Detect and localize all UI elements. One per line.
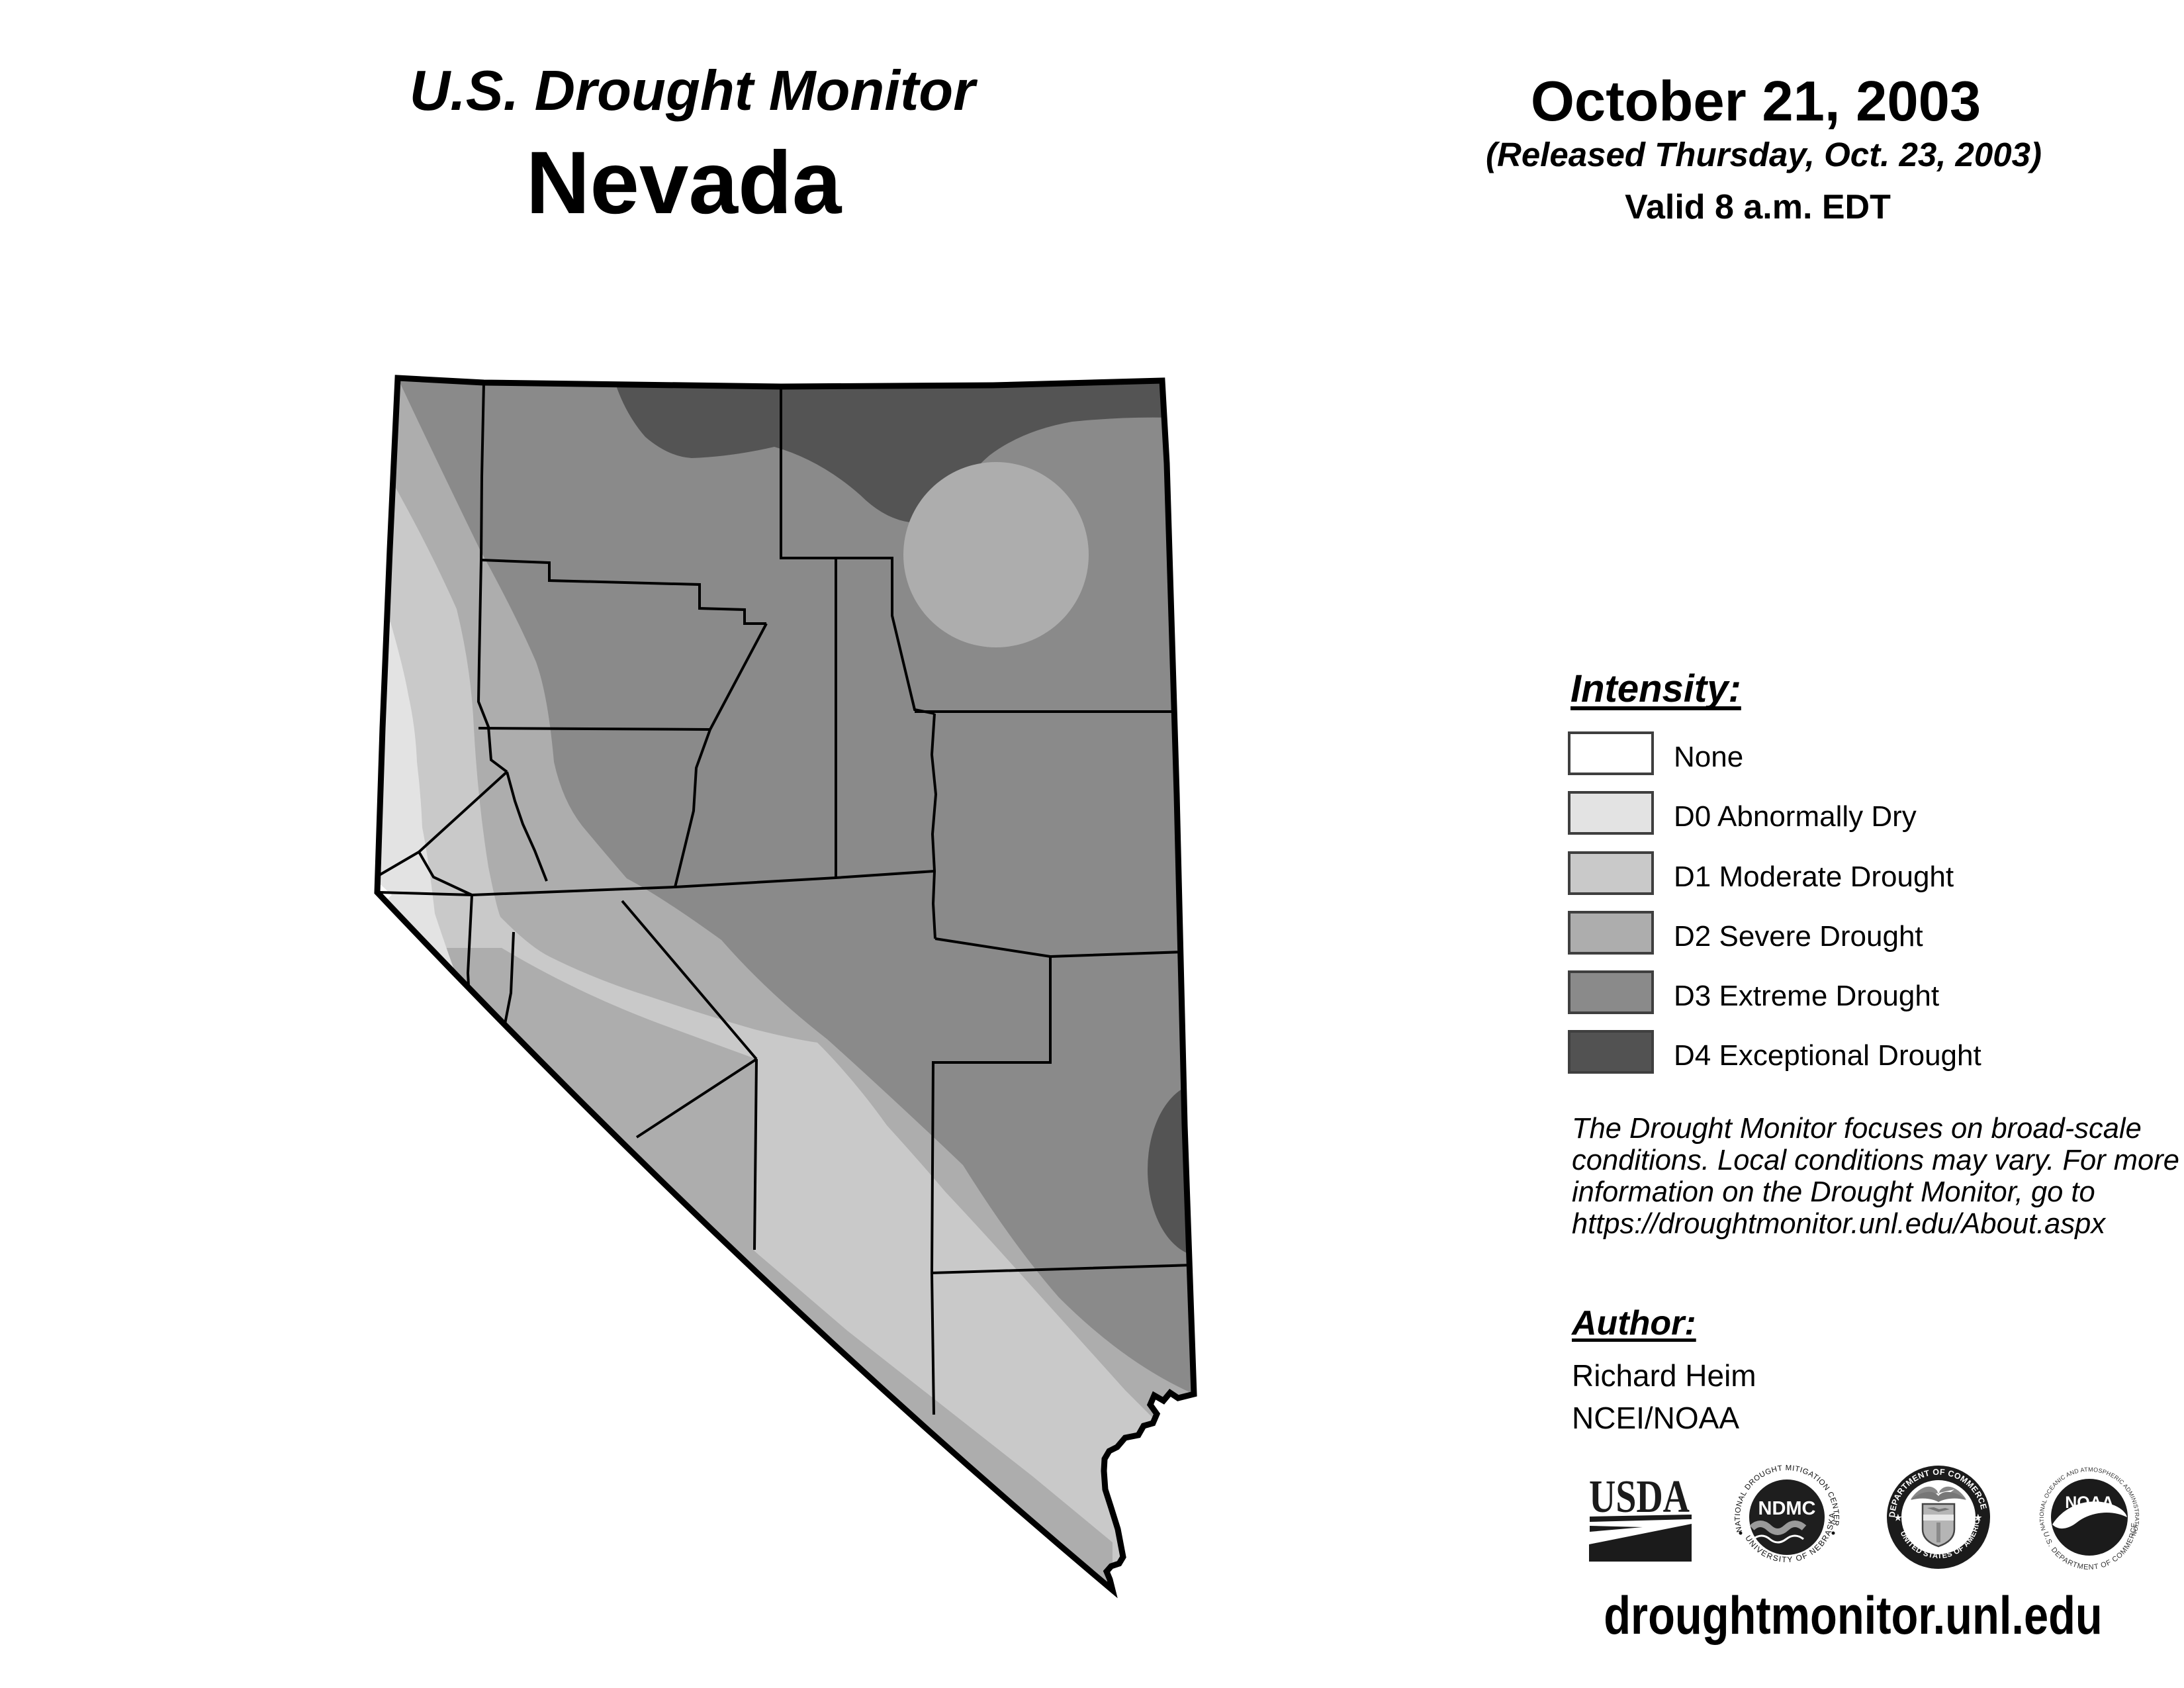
svg-text:★: ★ [1894,1513,1902,1523]
svg-text:★: ★ [1974,1513,1982,1523]
svg-text:NDMC: NDMC [1758,1498,1816,1519]
svg-text:USDA: USDA [1589,1472,1690,1523]
